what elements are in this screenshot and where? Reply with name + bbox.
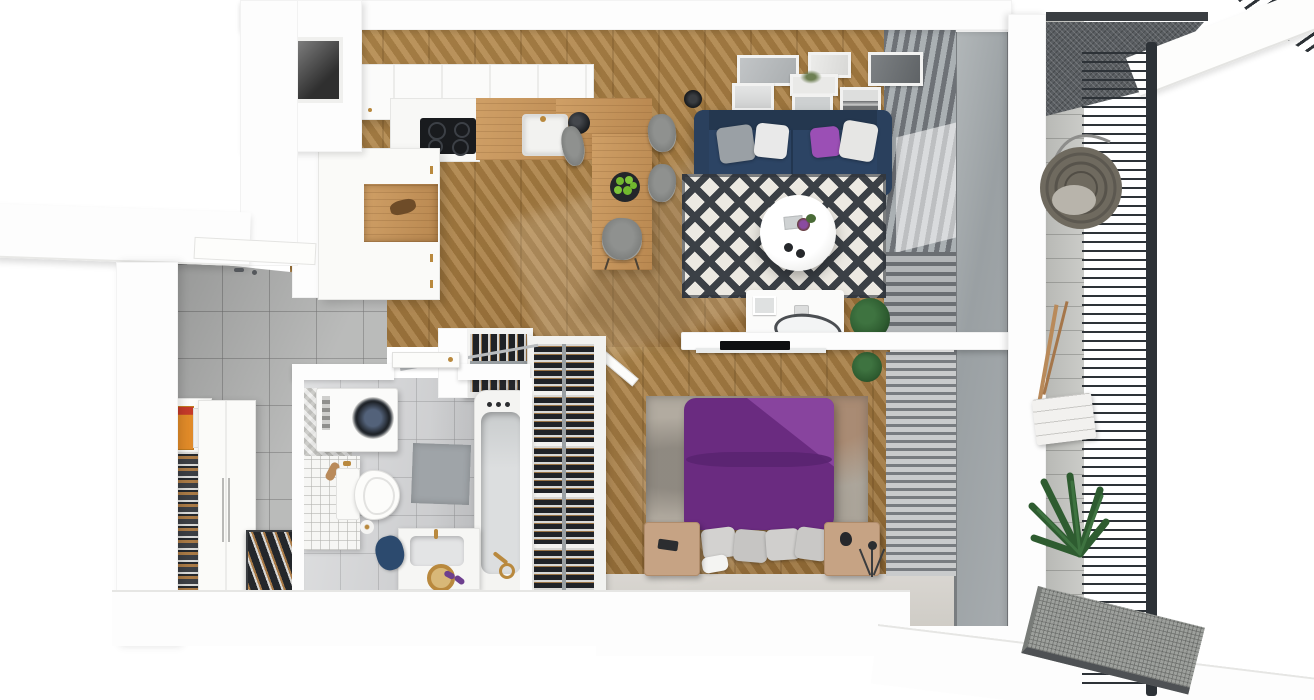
tub-fitting-dot (487, 402, 492, 407)
bathroom-left-wall (292, 378, 304, 592)
apple (616, 177, 624, 185)
wardrobe-rail (562, 344, 566, 596)
folded-blanket (1031, 393, 1096, 446)
tv (720, 341, 790, 350)
tub-fitting-dot (496, 402, 501, 407)
airplant-sprig (800, 70, 822, 84)
cabinet-knob (368, 108, 372, 112)
tripod-lamp-head (868, 541, 877, 550)
sofa-pillow-purple (810, 126, 842, 159)
wall-frame (868, 52, 923, 86)
bathroom-door-handle (448, 357, 453, 362)
desk-photo-frame (753, 296, 776, 315)
flush-button (343, 461, 351, 466)
cooktop-burner (454, 122, 470, 138)
washer-door (352, 397, 394, 439)
egg-chair-cushion (1052, 185, 1096, 215)
sofa-pillow-white (753, 122, 789, 159)
dining-chair (601, 217, 642, 260)
wardrobe-handle (228, 478, 230, 542)
washer-drawer (322, 396, 330, 430)
toilet-paper-roll (360, 520, 374, 534)
tub-handheld-shower (499, 563, 515, 579)
bathroom-right-wall (520, 378, 532, 592)
bath-mat (411, 443, 471, 505)
living-louver-blind (884, 252, 956, 336)
vanity-faucet (434, 529, 438, 539)
bedroom-blinds (886, 352, 956, 576)
balcony-palm-plant (1018, 470, 1110, 580)
balcony-top-frame-bar (1046, 12, 1208, 21)
table-cup (796, 249, 805, 258)
wardrobe-handle (222, 478, 224, 542)
bathtub-basin (481, 412, 521, 574)
cooktop-burner (428, 122, 446, 140)
sink-faucet (540, 116, 546, 122)
floor-plan-scene (0, 0, 1314, 700)
bed-fold (686, 452, 832, 467)
flower-greens (806, 214, 816, 223)
coffee-table (760, 195, 836, 271)
cabinet-handle (430, 254, 433, 262)
tub-fitting-dot (505, 402, 510, 407)
sheer-curtain (896, 123, 956, 253)
table-cup (784, 243, 793, 252)
left-wall-lower (116, 262, 178, 646)
entry-door-handle (234, 268, 244, 272)
floor-speaker (684, 90, 702, 108)
bedroom-plant (852, 352, 882, 382)
cabinet-handle (430, 280, 433, 288)
wall-frame (732, 83, 774, 111)
apple (630, 182, 637, 189)
cooktop-burner (452, 139, 469, 156)
bathroom-top-wall-left (292, 364, 394, 380)
sofa-pillow-grey (716, 124, 757, 165)
entry-door-handle-dot (252, 270, 257, 275)
hanging-egg-chair (1034, 112, 1128, 232)
bird-figurine (840, 532, 852, 546)
vanity-sink (410, 536, 464, 566)
cabinet-handle (430, 166, 433, 174)
bed-pillow (733, 529, 770, 564)
sofa-pillow-white (838, 119, 879, 163)
railing-post (1146, 42, 1157, 696)
apple (614, 186, 622, 194)
